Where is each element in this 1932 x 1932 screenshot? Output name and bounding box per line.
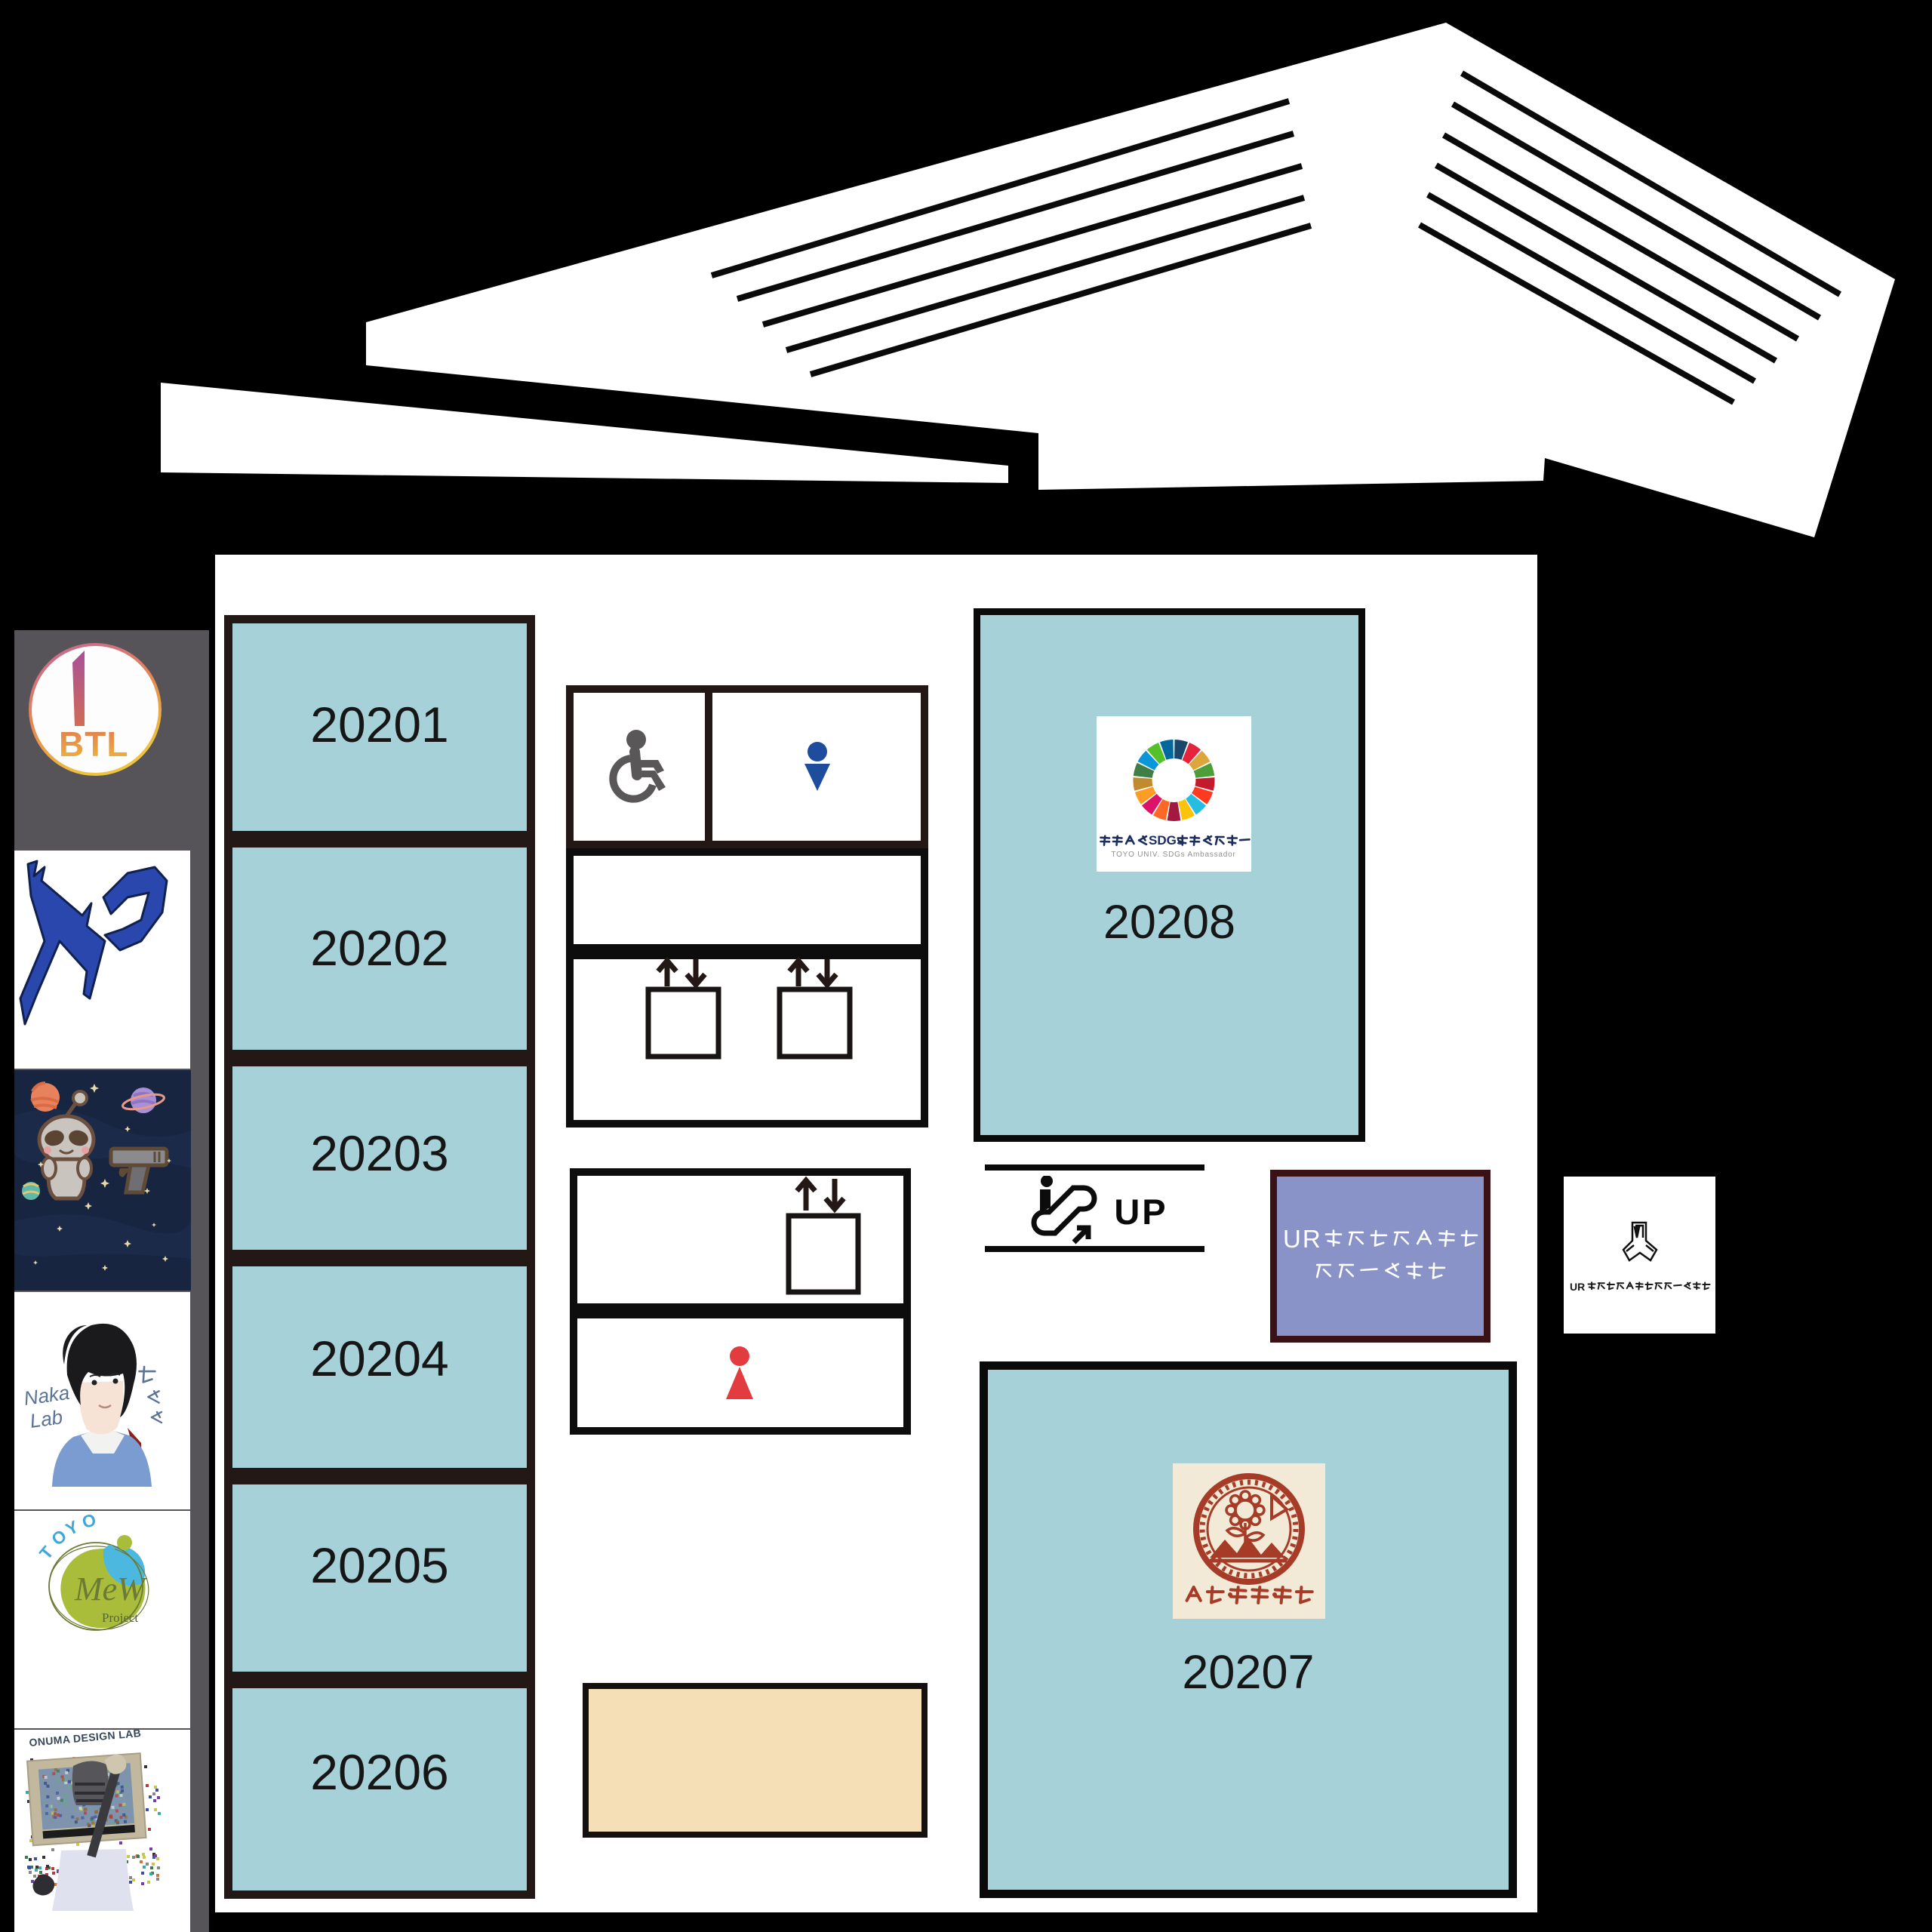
svg-text:Project: Project (102, 1611, 138, 1625)
svg-text:O: O (80, 1511, 97, 1532)
svg-text:Lab: Lab (29, 1405, 64, 1432)
svg-text:BTL: BTL (59, 724, 128, 764)
svg-text:Naka: Naka (23, 1381, 71, 1410)
svg-text:MeW: MeW (74, 1571, 147, 1607)
svg-text:ONUMA DESIGN LAB: ONUMA DESIGN LAB (29, 1730, 142, 1749)
svg-text:T: T (35, 1543, 57, 1563)
